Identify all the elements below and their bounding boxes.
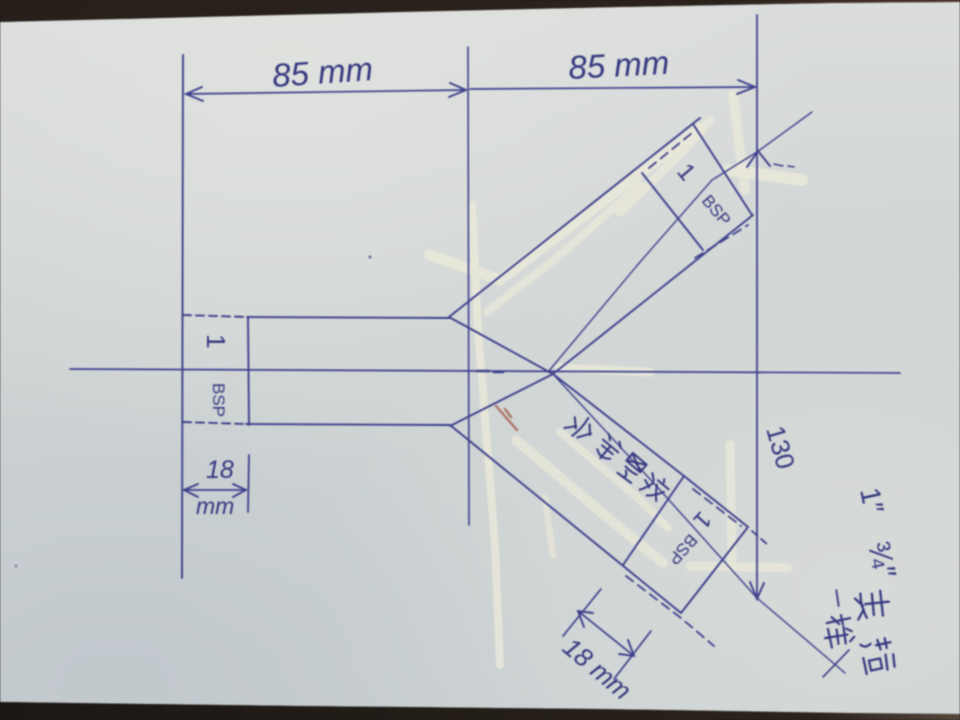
svg-text:mm: mm	[196, 493, 234, 519]
svg-text:18: 18	[206, 456, 234, 484]
svg-text:1: 1	[201, 334, 231, 348]
svg-text:85 mm: 85 mm	[567, 44, 670, 86]
svg-text:¾″: ¾″	[861, 538, 903, 581]
svg-text:BSP: BSP	[209, 383, 228, 417]
svg-text:85 mm: 85 mm	[271, 50, 374, 94]
